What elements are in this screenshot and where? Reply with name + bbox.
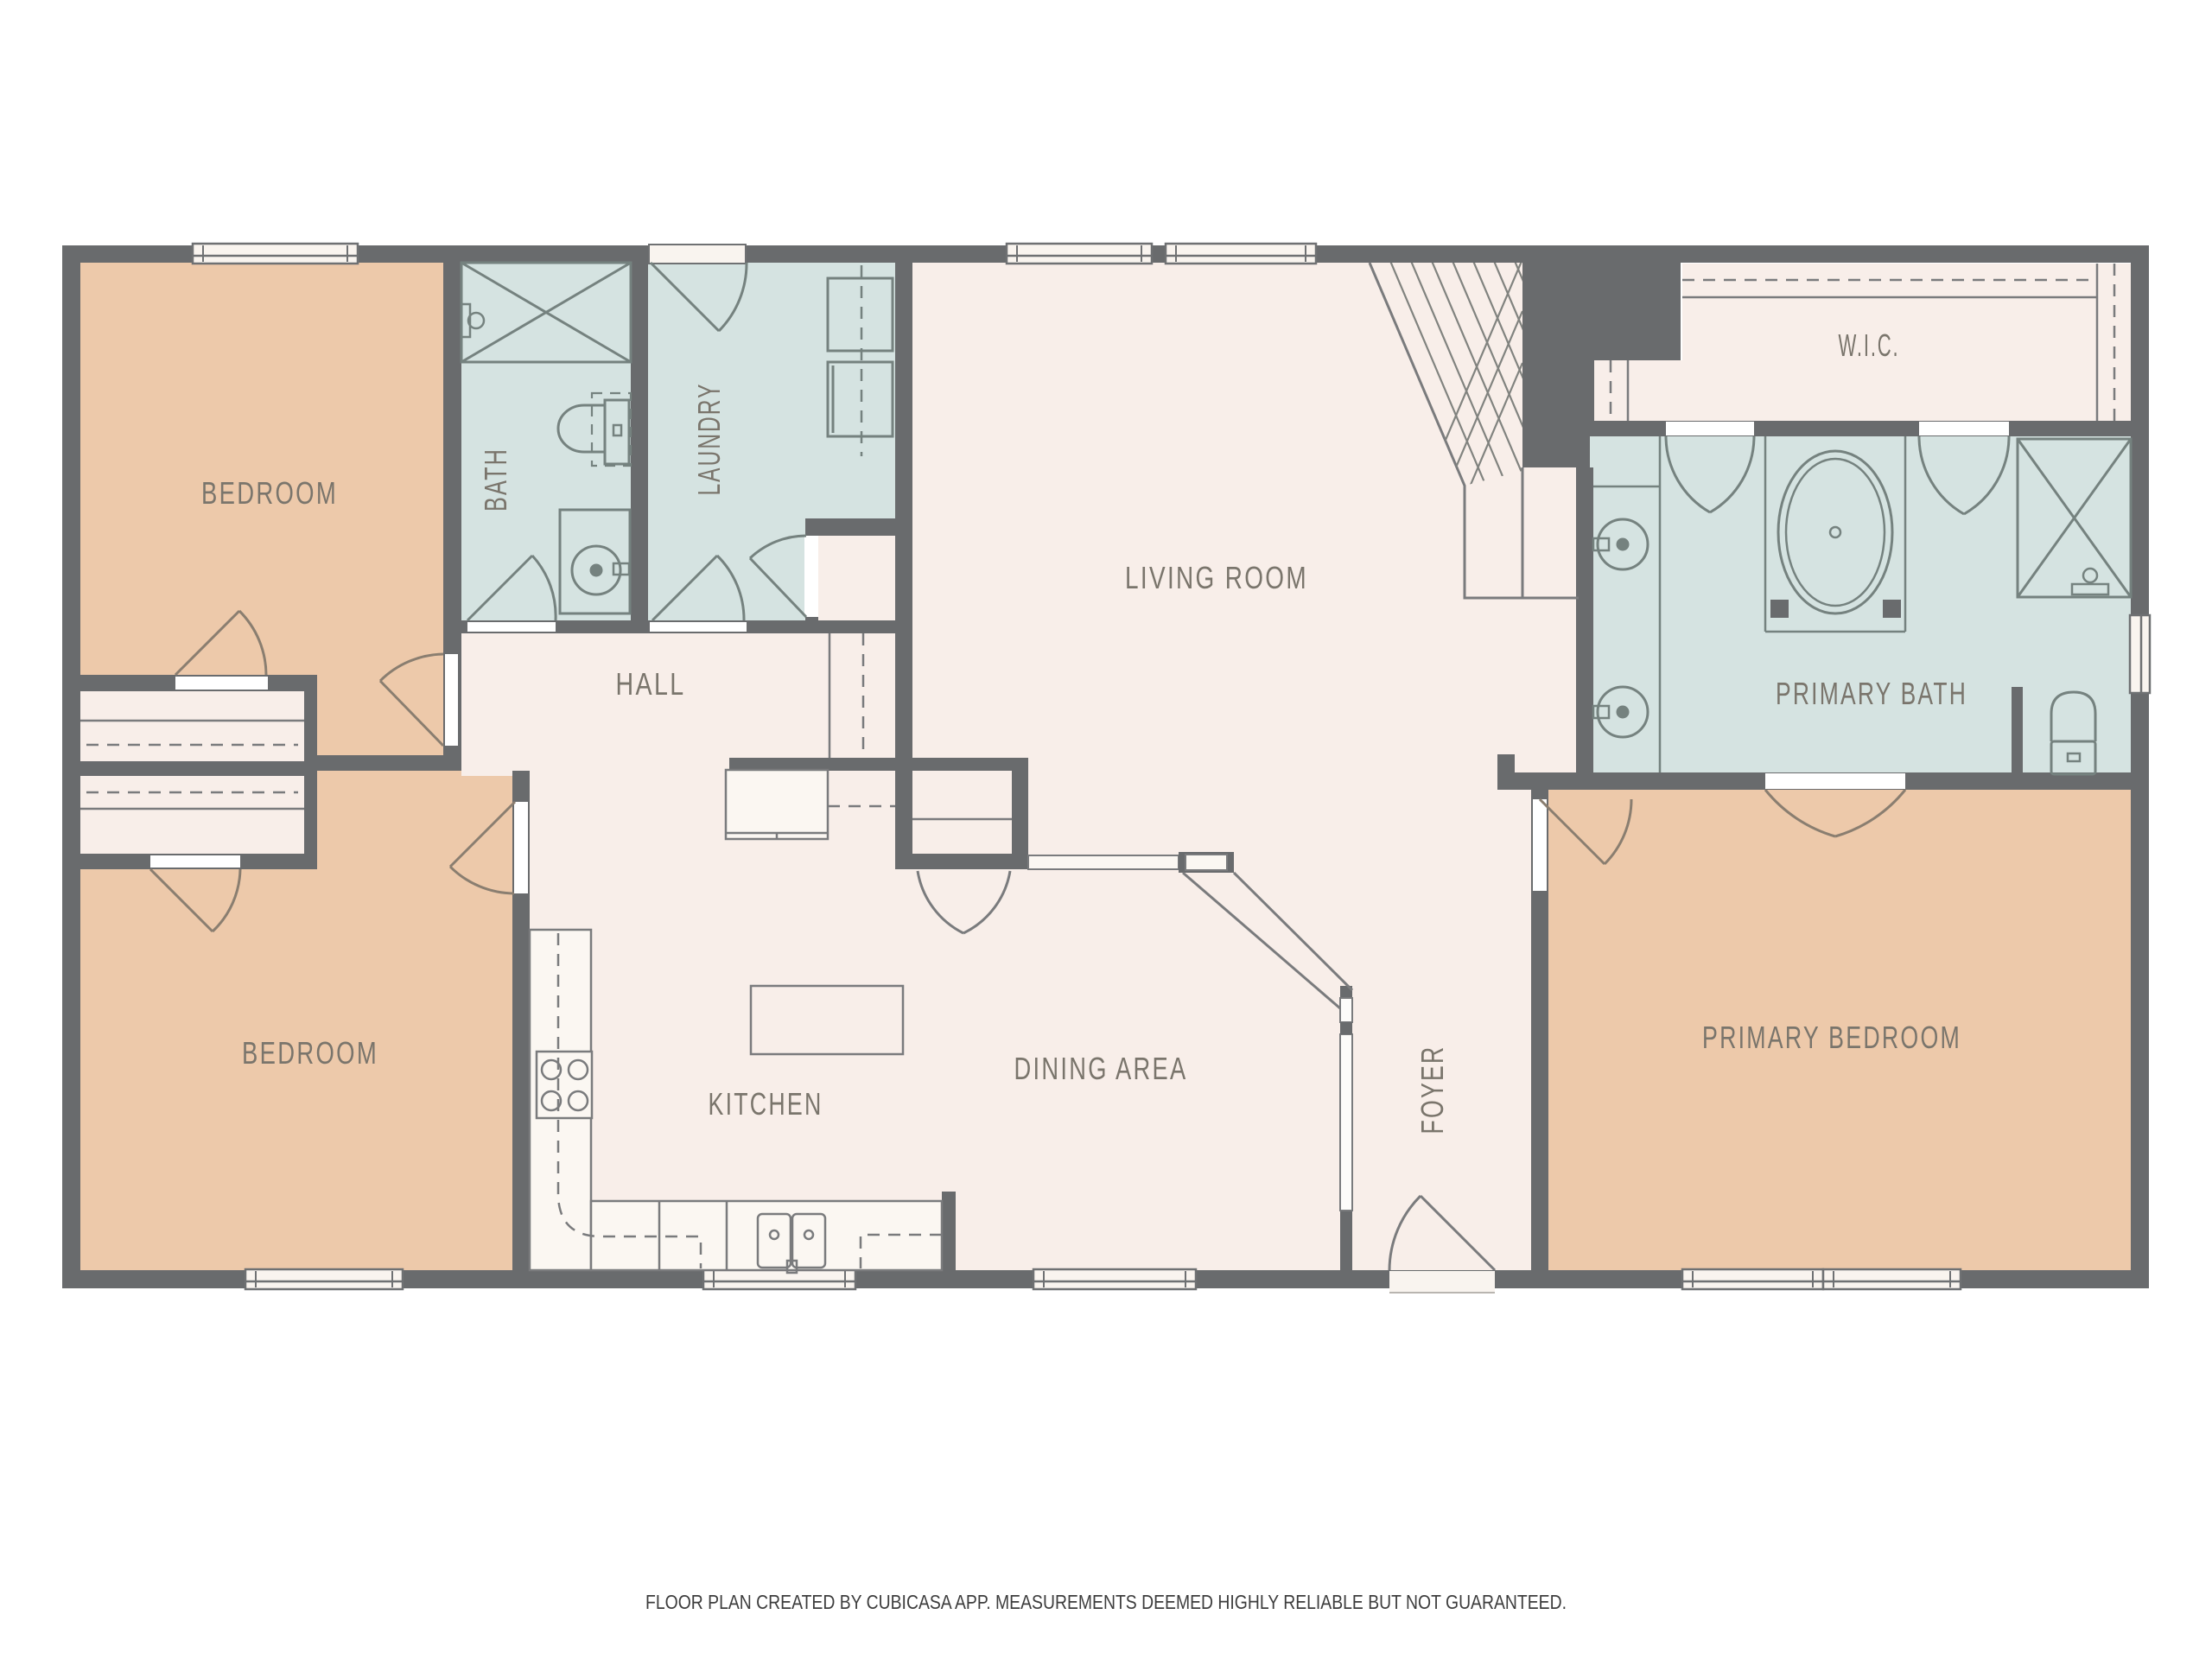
svg-text:W.I.C.: W.I.C. (1839, 327, 1900, 363)
svg-text:BEDROOM: BEDROOM (242, 1035, 378, 1071)
svg-text:DINING AREA: DINING AREA (1014, 1051, 1188, 1086)
svg-text:FOYER: FOYER (1414, 1046, 1450, 1135)
svg-text:FLOOR PLAN CREATED BY CUBICASA: FLOOR PLAN CREATED BY CUBICASA APP. MEAS… (645, 1591, 1567, 1613)
svg-text:PRIMARY BEDROOM: PRIMARY BEDROOM (1702, 1020, 1961, 1055)
svg-text:LAUNDRY: LAUNDRY (691, 383, 727, 496)
svg-text:KITCHEN: KITCHEN (709, 1086, 823, 1122)
svg-text:LIVING ROOM: LIVING ROOM (1125, 560, 1308, 595)
svg-text:BATH: BATH (478, 448, 513, 512)
svg-text:PRIMARY BATH: PRIMARY BATH (1776, 676, 1967, 711)
svg-text:HALL: HALL (616, 666, 686, 702)
svg-text:BEDROOM: BEDROOM (201, 475, 338, 511)
